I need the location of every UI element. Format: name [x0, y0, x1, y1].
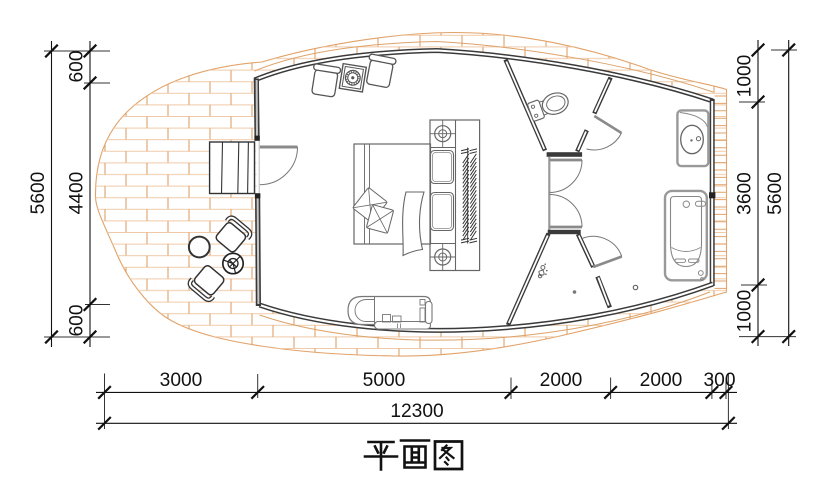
svg-text:1000: 1000 [735, 290, 756, 333]
svg-text:600: 600 [67, 50, 88, 82]
svg-text:12300: 12300 [390, 401, 443, 422]
svg-text:5600: 5600 [28, 172, 49, 215]
svg-text:4400: 4400 [67, 172, 88, 215]
svg-text:3600: 3600 [735, 172, 756, 215]
svg-text:1000: 1000 [735, 55, 756, 98]
svg-text:5600: 5600 [765, 172, 786, 215]
svg-text:300: 300 [703, 370, 735, 391]
svg-text:3000: 3000 [160, 370, 203, 391]
svg-text:600: 600 [67, 304, 88, 336]
svg-text:2000: 2000 [640, 370, 683, 391]
svg-text:2000: 2000 [540, 370, 583, 391]
svg-text:5000: 5000 [363, 370, 406, 391]
